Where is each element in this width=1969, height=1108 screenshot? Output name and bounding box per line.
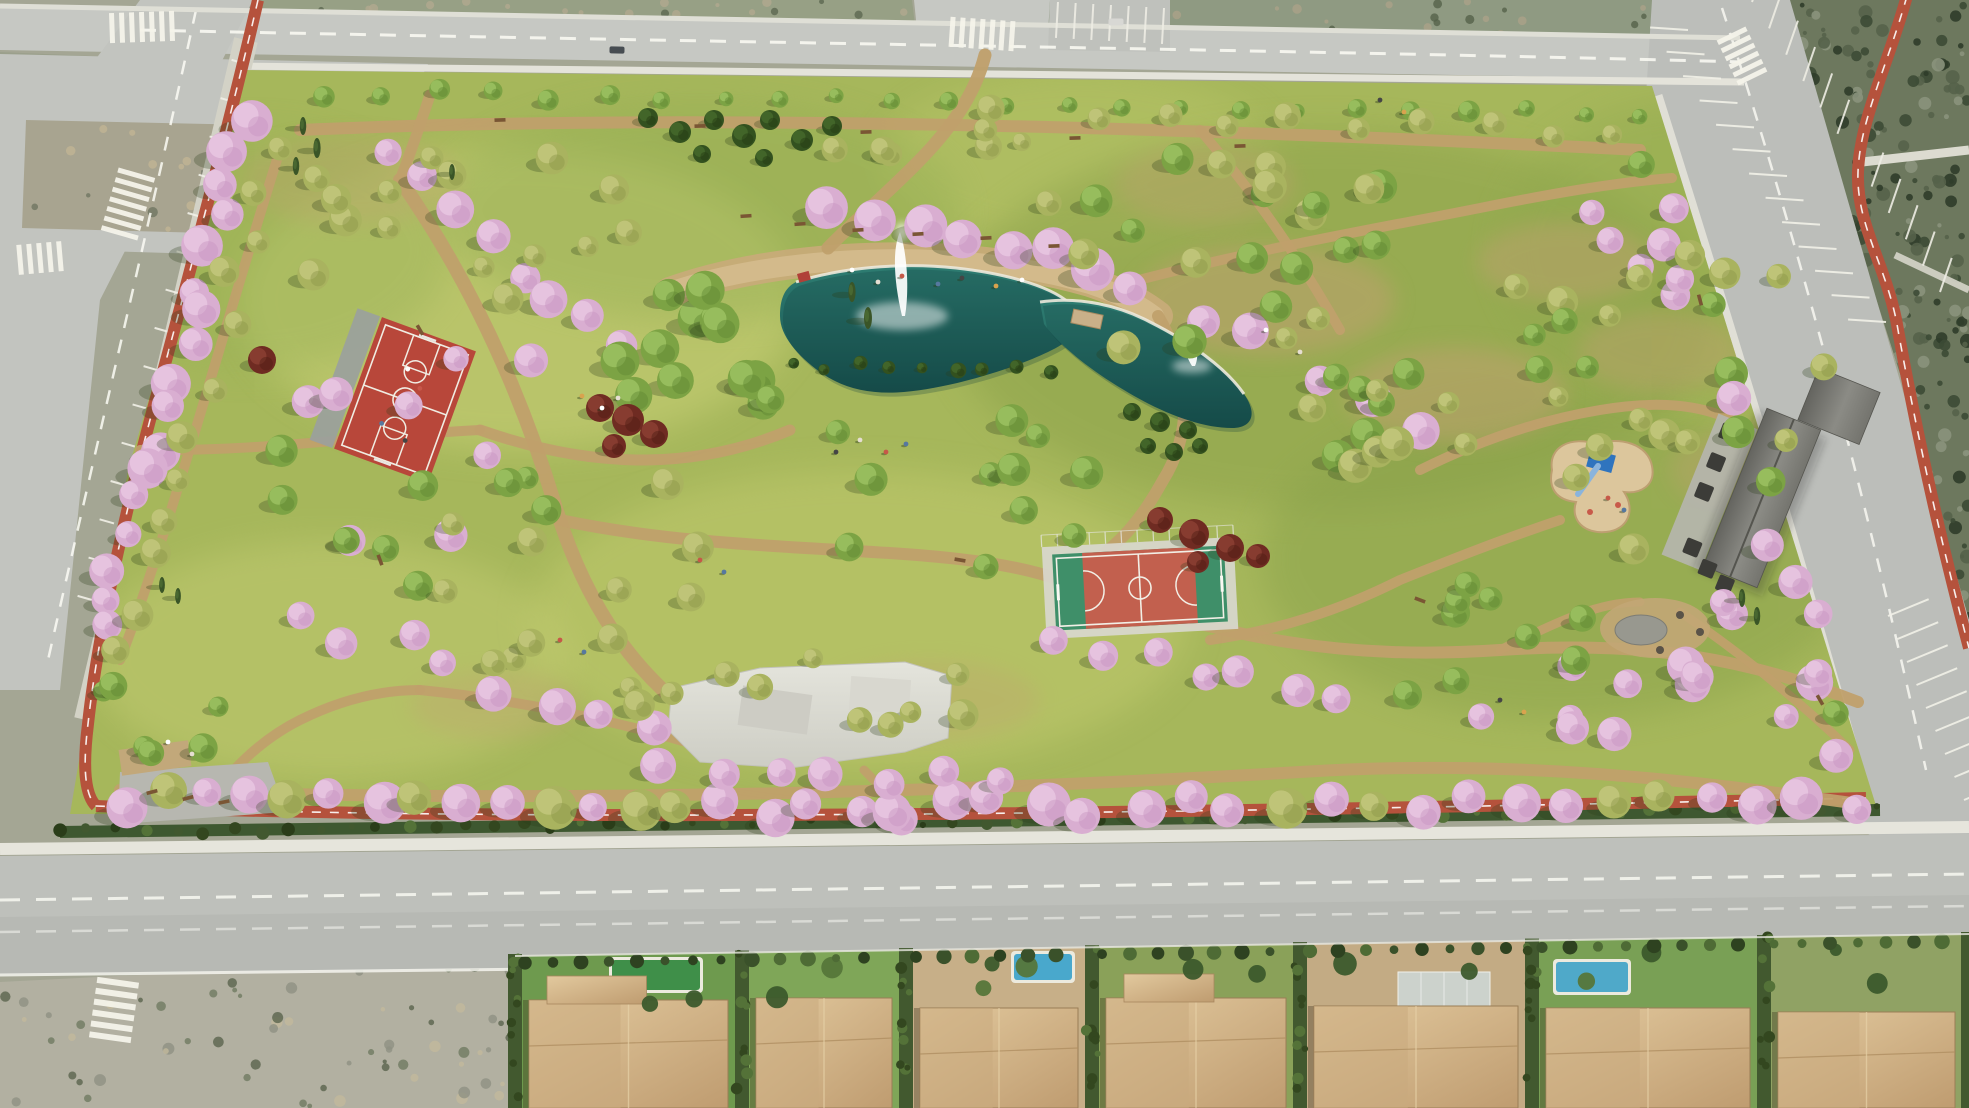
park-bench <box>494 118 505 122</box>
housing-strip <box>506 931 1969 1108</box>
person <box>1020 278 1025 283</box>
person <box>1298 350 1303 355</box>
person <box>900 274 905 279</box>
person <box>994 284 999 289</box>
park-bench <box>860 130 871 134</box>
park-scene <box>0 0 1969 1108</box>
person <box>190 752 195 757</box>
goal <box>1221 576 1222 592</box>
person <box>1402 110 1407 115</box>
person <box>580 394 585 399</box>
person <box>698 558 703 563</box>
picnic-table <box>1676 611 1684 619</box>
park-bench <box>1069 136 1080 140</box>
person <box>722 570 727 575</box>
fence-post <box>1105 532 1106 544</box>
person <box>850 268 855 273</box>
person <box>904 442 909 447</box>
park-bench <box>1234 144 1245 148</box>
parked-car <box>1109 19 1124 26</box>
house-parcel <box>895 947 1092 1108</box>
park-bench <box>694 124 705 128</box>
scrub-bottom-left <box>0 956 552 1108</box>
person <box>600 406 605 411</box>
person <box>936 282 941 287</box>
person <box>1606 496 1611 501</box>
house-roof-wing <box>1124 974 1214 1002</box>
parked-car <box>609 46 624 53</box>
person <box>1622 508 1627 513</box>
house-roof-wing <box>547 976 647 1004</box>
house-parcel <box>1291 941 1532 1108</box>
person <box>1378 98 1383 103</box>
house-parcel <box>1523 937 1764 1108</box>
person <box>1498 698 1503 703</box>
fence-post <box>1041 535 1042 547</box>
person <box>616 396 621 401</box>
person <box>166 740 171 745</box>
park-bench <box>912 232 923 236</box>
goal <box>1058 584 1059 600</box>
house-parcel <box>731 950 906 1108</box>
park-bench <box>980 236 991 240</box>
spring-toy <box>1587 509 1593 515</box>
house-parcel <box>506 953 742 1108</box>
person <box>884 450 889 455</box>
person <box>1264 328 1269 333</box>
person <box>1522 710 1527 715</box>
aerial-park-render <box>0 0 1969 1108</box>
person <box>558 638 563 643</box>
person <box>582 650 587 655</box>
picnic-table <box>1656 646 1664 654</box>
fence-post <box>1217 526 1218 538</box>
park-bench <box>794 222 805 226</box>
person <box>858 438 863 443</box>
fence-post <box>1137 530 1138 542</box>
house-parcel <box>1757 931 1969 1108</box>
person <box>960 276 965 281</box>
house-parcel <box>1081 944 1300 1108</box>
fence-post <box>1169 528 1170 540</box>
park-bench <box>852 228 863 232</box>
park-bench <box>1048 244 1059 248</box>
picnic-table <box>1696 628 1704 636</box>
fence-post <box>1121 531 1122 543</box>
fence-post <box>1089 533 1090 545</box>
park-bench <box>740 214 751 218</box>
person <box>834 450 839 455</box>
person <box>876 280 881 285</box>
boulder <box>1615 615 1667 645</box>
spring-toy <box>1615 502 1621 508</box>
